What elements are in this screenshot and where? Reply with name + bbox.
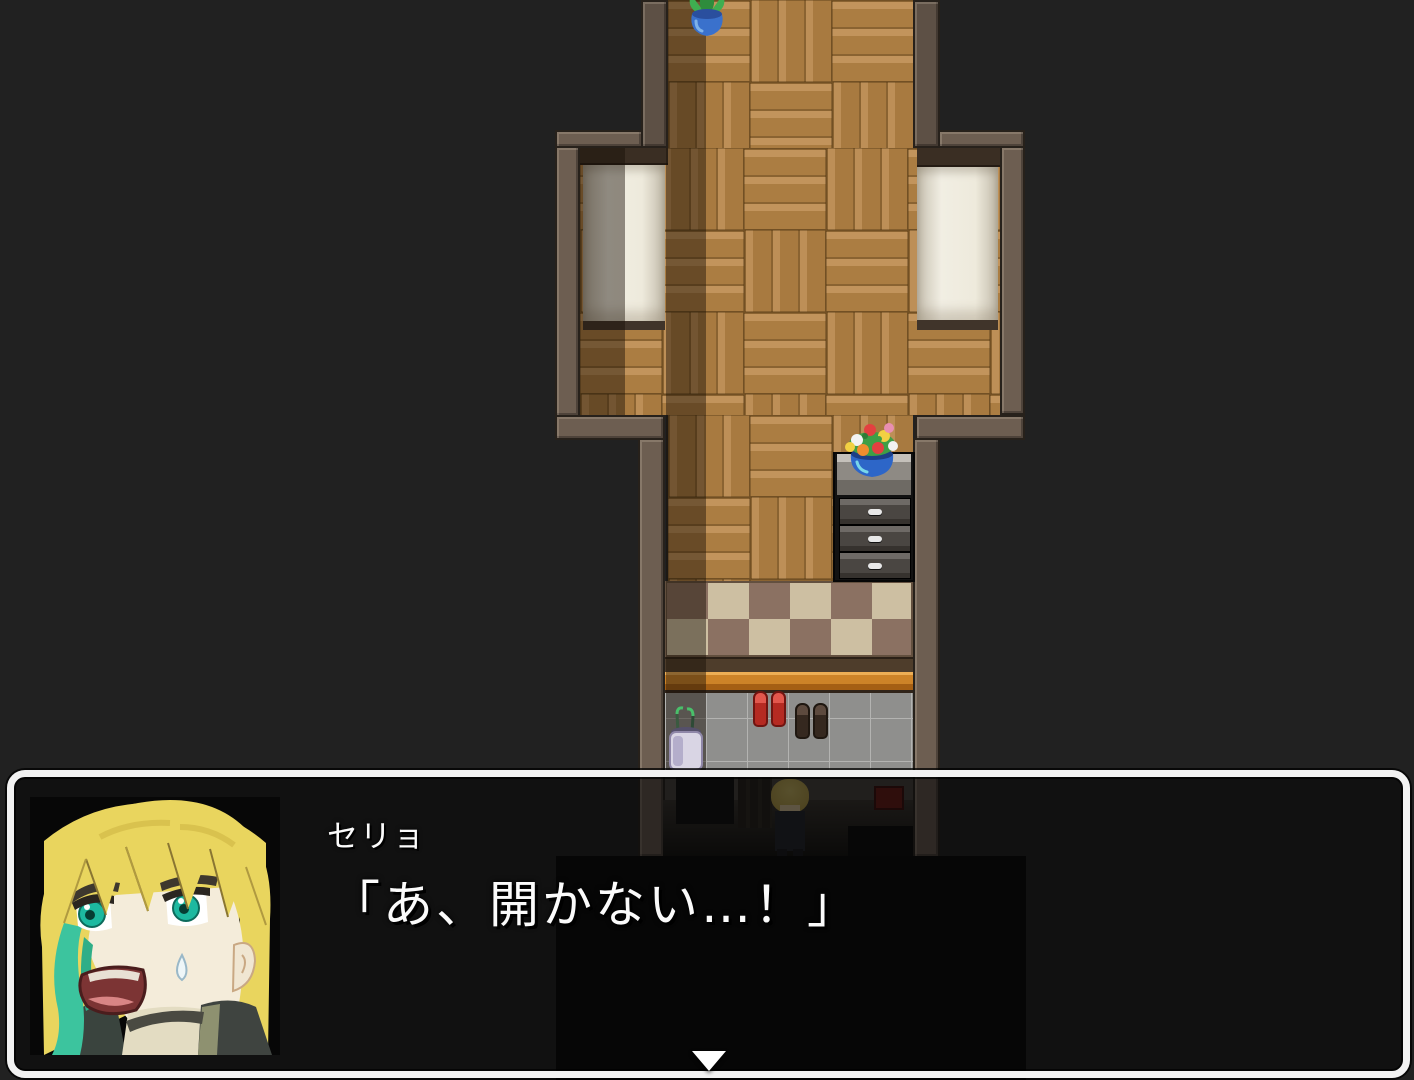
drawer-handle bbox=[868, 563, 882, 569]
character-portrait bbox=[30, 797, 280, 1055]
parquet-tile bbox=[826, 148, 908, 230]
wall-top-left bbox=[641, 0, 668, 148]
bed-right-headwall bbox=[917, 148, 1000, 167]
brown-shoes bbox=[795, 703, 828, 739]
parquet-tile bbox=[832, 82, 913, 148]
wall-top-right bbox=[913, 0, 940, 148]
parquet-tile bbox=[832, 0, 913, 82]
red-shoes bbox=[753, 691, 786, 727]
wall-cap-right-bottom bbox=[915, 415, 1025, 440]
dresser-drawer bbox=[839, 498, 911, 525]
wall-cap-left-bottom bbox=[555, 415, 665, 440]
bed-right bbox=[917, 167, 998, 320]
wall-outer-left bbox=[555, 146, 580, 417]
parquet-tile bbox=[826, 312, 908, 394]
potted-plant-icon bbox=[684, 0, 730, 52]
dresser-drawer bbox=[839, 525, 911, 552]
bed-right-foot bbox=[917, 320, 998, 330]
wall-shadow-bed bbox=[580, 148, 625, 415]
parquet-tile bbox=[990, 394, 1000, 415]
flower-vase bbox=[837, 414, 907, 486]
parquet-tile bbox=[826, 394, 908, 415]
umbrella-stand-icon bbox=[664, 704, 708, 772]
parquet-tile bbox=[744, 394, 826, 415]
parquet-tile bbox=[750, 497, 832, 579]
drawer-handle bbox=[868, 536, 882, 542]
dialogue-text: 「あ、開かない…！」 bbox=[330, 865, 860, 937]
flower-vase-icon bbox=[837, 414, 907, 486]
parquet-tile bbox=[826, 230, 908, 312]
parquet-tile bbox=[908, 394, 990, 415]
brown-shoe bbox=[795, 703, 810, 739]
umbrella-stand bbox=[664, 704, 708, 772]
parquet-tile bbox=[744, 312, 826, 394]
drawer-handle bbox=[868, 509, 882, 515]
parquet-tile bbox=[744, 148, 826, 230]
parquet-tile bbox=[750, 82, 832, 148]
message-window[interactable]: セリョ 「あ、開かない…！」 bbox=[7, 770, 1410, 1078]
parquet-tile bbox=[744, 230, 826, 312]
parquet-tile bbox=[750, 0, 832, 82]
dresser-drawer bbox=[839, 552, 911, 579]
parquet-tile bbox=[750, 415, 832, 497]
portrait-art bbox=[30, 797, 280, 1055]
speaker-name: セリョ bbox=[327, 811, 426, 856]
red-shoe bbox=[771, 691, 786, 727]
potted-plant bbox=[684, 0, 730, 52]
red-shoe bbox=[753, 691, 768, 727]
wall-shadow-corridor bbox=[666, 0, 706, 772]
wall-outer-right bbox=[1000, 146, 1025, 415]
brown-shoe bbox=[813, 703, 828, 739]
game-screen: セリョ 「あ、開かない…！」 bbox=[0, 0, 1414, 1080]
continue-indicator bbox=[692, 1051, 726, 1071]
